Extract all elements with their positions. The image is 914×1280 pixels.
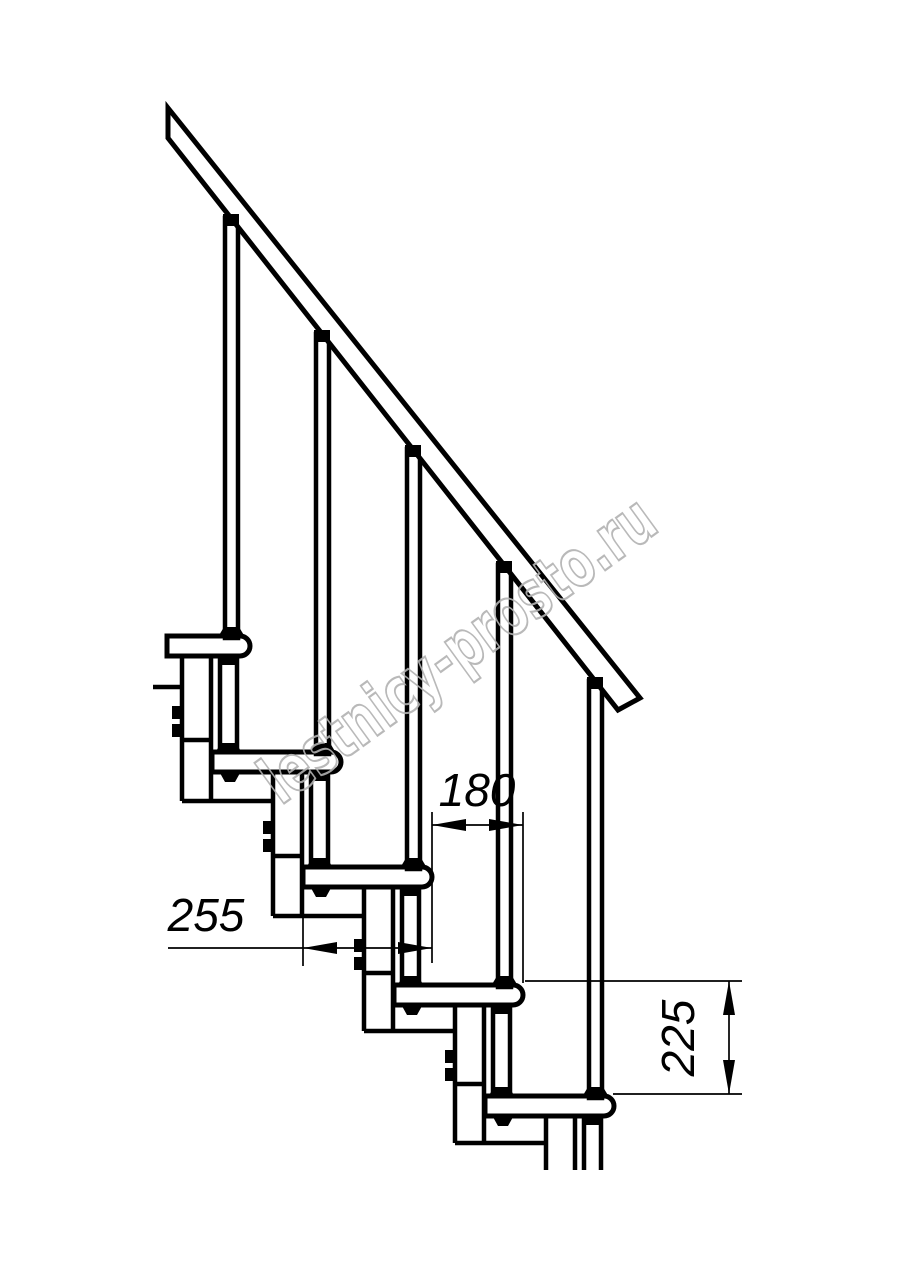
arrowhead-up-icon	[723, 981, 735, 1015]
baluster-2	[316, 334, 329, 754]
bolt-tab	[445, 1068, 455, 1081]
arrowhead-down-icon	[723, 1060, 735, 1094]
bolt-tab	[354, 957, 364, 970]
bolt-tab	[263, 839, 273, 852]
baluster-rail-joint	[587, 677, 603, 689]
bolt-tab	[172, 724, 182, 737]
support-tube-3	[402, 886, 419, 988]
baluster-rail-joint	[405, 445, 421, 457]
baluster-rail-joint	[223, 214, 239, 226]
baluster-1	[225, 218, 238, 638]
tread-nut	[311, 888, 331, 897]
baluster-5	[589, 681, 602, 1098]
bolt-tab	[354, 939, 364, 952]
dimension-run-label: 180	[439, 764, 516, 816]
baluster-foot	[582, 1087, 609, 1097]
spine-module-5	[546, 1116, 575, 1170]
staircase-technical-drawing: 180 255 225 lestnicy-prosto.ru	[0, 0, 914, 1280]
tube-top-flange	[217, 656, 240, 665]
support-tube-4	[493, 1004, 510, 1099]
tread-nut	[493, 1117, 513, 1126]
support-tube-1	[220, 655, 237, 755]
baluster-foot	[218, 627, 245, 637]
tread-nut	[402, 1006, 422, 1015]
bolt-tab	[445, 1050, 455, 1063]
baluster-foot	[400, 858, 427, 868]
tube-top-flange	[581, 1116, 604, 1125]
dimension-rise-label: 225	[652, 999, 704, 1077]
baluster-rail-joint	[314, 330, 330, 342]
arrowhead-left-icon	[432, 819, 466, 831]
dimension-rise: 225	[525, 981, 742, 1094]
tread-nut	[220, 773, 240, 782]
tube-top-flange	[399, 887, 422, 896]
tube-top-flange	[490, 1005, 513, 1014]
dimension-depth-label: 255	[167, 889, 245, 941]
arrowhead-left-icon	[303, 942, 337, 954]
baluster-foot	[491, 976, 518, 986]
bolt-tab	[263, 821, 273, 834]
bolt-tab	[172, 706, 182, 719]
